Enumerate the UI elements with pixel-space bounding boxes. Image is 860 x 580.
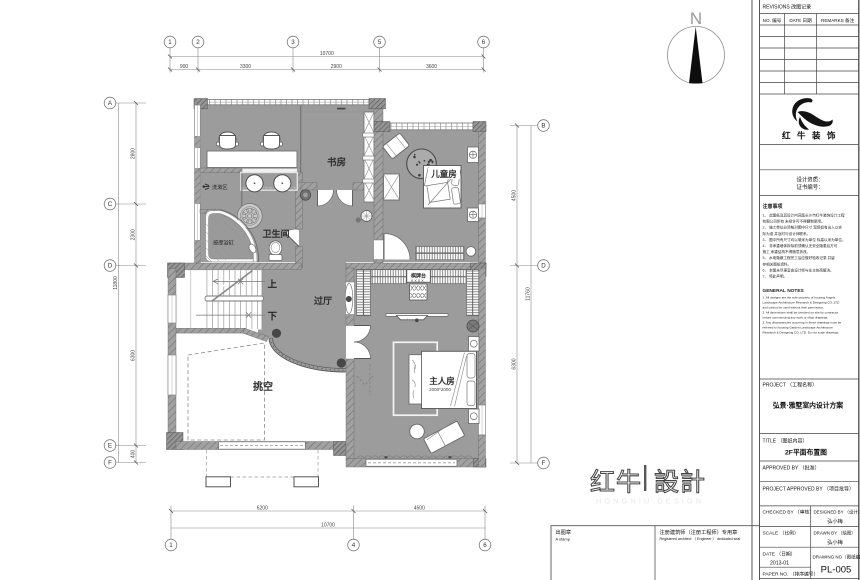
svg-text:NO. 编号: NO. 编号	[763, 17, 782, 24]
svg-text:3300: 3300	[240, 64, 251, 70]
svg-text:4: 4	[352, 542, 356, 549]
svg-text:6300: 6300	[130, 350, 136, 361]
svg-text:HONGNIU DESIGN: HONGNIU DESIGN	[596, 497, 704, 506]
svg-text:2900: 2900	[331, 64, 342, 70]
svg-text:棋牌台: 棋牌台	[411, 273, 426, 280]
svg-text:11800: 11800	[113, 276, 119, 290]
svg-text:DATE （日期）: DATE （日期）	[763, 552, 796, 558]
svg-text:3． 图中所有尺寸均以毫米为单位 标高以米为单位。: 3． 图中所有尺寸均以毫米为单位 标高以米为单位。	[763, 237, 846, 242]
svg-text:过厅: 过厅	[314, 295, 332, 306]
svg-text:REVISIONS 改图记录: REVISIONS 改图记录	[763, 4, 812, 11]
svg-text:4500: 4500	[511, 190, 517, 201]
svg-text:REMARKS 备注: REMARKS 备注	[821, 17, 855, 24]
svg-text:红牛: 红牛	[590, 469, 642, 497]
svg-text:弘小梅: 弘小梅	[827, 517, 843, 525]
svg-text:400: 400	[130, 450, 136, 459]
svg-text:F: F	[542, 460, 546, 467]
svg-text:B: B	[541, 123, 545, 130]
svg-text:2F平面布置图: 2F平面布置图	[785, 448, 827, 457]
svg-text:2800: 2800	[130, 148, 136, 159]
svg-text:书房: 书房	[327, 157, 346, 169]
svg-text:5: 5	[378, 39, 382, 46]
svg-text:Landscape Architecture Researc: Landscape Architecture Research & Design…	[763, 301, 841, 305]
svg-text:注意事项: 注意事项	[763, 203, 783, 210]
svg-text:儿童房: 儿童房	[430, 169, 457, 179]
svg-text:and cannot be used without the: and cannot be used without their permiss…	[763, 306, 825, 310]
svg-text:PL-005: PL-005	[821, 565, 852, 576]
svg-text:1: 1	[168, 39, 172, 46]
svg-text:注册建筑师（注册工程师）专用章: 注册建筑师（注册工程师）专用章	[660, 528, 738, 536]
svg-text:A stamp: A stamp	[556, 537, 571, 542]
svg-text:referred to housing Garden Lan: referred to housing Garden Landscape Arc…	[763, 326, 834, 330]
svg-text:TITLE （图纸内容）: TITLE （图纸内容）	[763, 438, 808, 445]
svg-text:下: 下	[268, 312, 278, 323]
svg-text:2300: 2300	[130, 229, 136, 240]
svg-text:弘景·雅墅室内设计方案: 弘景·雅墅室内设计方案	[773, 401, 843, 410]
svg-text:4500: 4500	[414, 505, 425, 511]
svg-text:C: C	[108, 201, 113, 208]
svg-text:设计资质：: 设计资质：	[797, 176, 824, 184]
svg-text:設計: 設計	[654, 469, 706, 497]
svg-text:N: N	[690, 9, 702, 28]
svg-text:主人房: 主人房	[429, 376, 455, 386]
svg-text:3. Any discrepancies occurring: 3. Any discrepancies occurring in these …	[763, 321, 842, 325]
svg-text:3600: 3600	[426, 64, 437, 70]
svg-text:SCALE （比例）: SCALE （比例）	[763, 530, 799, 537]
svg-text:APPROVED BY （批准）: APPROVED BY （批准）	[763, 465, 820, 472]
svg-text:Research & Designing CO.,LTD.: Research & Designing CO.,LTD. Do not sca…	[763, 331, 840, 335]
svg-text:洗漱区: 洗漱区	[212, 183, 228, 191]
svg-text:PROJECT （工程名称）: PROJECT （工程名称）	[763, 382, 818, 389]
svg-text:5． 水电隐蔽工程完工后应做好验收记录 并留: 5． 水电隐蔽工程完工后应做好验收记录 并留	[763, 255, 836, 260]
svg-text:2000*2000: 2000*2000	[429, 387, 451, 392]
svg-text:DRAWN BY （绘图）: DRAWN BY （绘图）	[814, 530, 856, 537]
svg-text:2. All dimensions shall be che: 2. All dimensions shall be checked on si…	[763, 311, 839, 315]
svg-text:CHECKED BY （审核）: CHECKED BY （审核）	[763, 509, 815, 516]
svg-text:6: 6	[483, 542, 487, 549]
svg-text:D: D	[108, 263, 113, 270]
svg-text:1: 1	[169, 542, 173, 549]
svg-text:4． 非承重墙体拆除前须确认无安全隐患后方可: 4． 非承重墙体拆除前须确认无安全隐患后方可	[763, 243, 838, 248]
svg-text:GENERAL NOTES: GENERAL NOTES	[763, 288, 805, 294]
svg-text:6． 本图未尽事宜由设计师与业主协商解决。: 6． 本图未尽事宜由设计师与业主协商解决。	[763, 267, 834, 272]
svg-text:存相关图纸资料。: 存相关图纸资料。	[763, 261, 792, 266]
svg-text:PROJECT APPROVED BY （项目批导）: PROJECT APPROVED BY （项目批导）	[763, 486, 855, 493]
svg-text:D: D	[541, 263, 546, 270]
svg-text:6300: 6300	[511, 358, 517, 369]
svg-text:6: 6	[482, 39, 486, 46]
svg-text:PAPER NO. （排序编号）: PAPER NO. （排序编号）	[763, 571, 819, 578]
svg-text:际为准 并及时与设计师联系。: 际为准 并及时与设计师联系。	[763, 231, 811, 236]
svg-text:10700: 10700	[321, 522, 335, 528]
svg-text:2: 2	[196, 39, 200, 46]
svg-text:按摩浴缸: 按摩浴缸	[213, 239, 234, 247]
svg-text:Registered architect （ Enginee: Registered architect （ Engineer ） dedica…	[660, 536, 741, 541]
svg-text:红牛装饰: 红牛装饰	[782, 131, 842, 141]
svg-text:DRAWING NO（图纸编号: DRAWING NO（图纸编号	[813, 554, 860, 561]
svg-text:F: F	[108, 460, 112, 467]
svg-text:施工 承重结构不得随意拆改。: 施工 承重结构不得随意拆改。	[763, 249, 811, 254]
svg-text:before commencing any work or: before commencing any work or shop drawi…	[763, 316, 829, 320]
svg-text:卫生间: 卫生间	[262, 228, 289, 239]
svg-text:上: 上	[268, 279, 278, 291]
svg-text:弘小梅: 弘小梅	[827, 538, 843, 546]
svg-text:证书编号：: 证书编号：	[797, 183, 824, 191]
svg-text:10700: 10700	[320, 51, 334, 57]
svg-text:6200: 6200	[257, 505, 268, 511]
svg-text:有限公司所有 未经许可不得翻制使用。: 有限公司所有 未经许可不得翻制使用。	[763, 219, 825, 224]
svg-text:E: E	[108, 443, 112, 450]
svg-text:1. All designs are the sole pr: 1. All designs are the sole property of …	[763, 296, 836, 300]
svg-text:900: 900	[180, 64, 189, 70]
svg-text:11760: 11760	[525, 287, 531, 301]
svg-text:2． 施工单位必须核对图中尺寸 现场如有出入以实: 2． 施工单位必须核对图中尺寸 现场如有出入以实	[763, 225, 843, 230]
svg-text:DESIGNED BY （设计）: DESIGNED BY （设计）	[814, 509, 860, 516]
svg-text:7． 特此声明。: 7． 特此声明。	[763, 274, 788, 279]
svg-text:2013-01: 2013-01	[770, 561, 789, 567]
svg-text:出图章: 出图章	[556, 528, 572, 536]
svg-text:1． 此图纸及其设计内容属长沙市红牛装饰设计工程: 1． 此图纸及其设计内容属长沙市红牛装饰设计工程	[763, 213, 845, 218]
svg-text:挑空: 挑空	[253, 380, 273, 393]
svg-text:3: 3	[291, 39, 295, 46]
